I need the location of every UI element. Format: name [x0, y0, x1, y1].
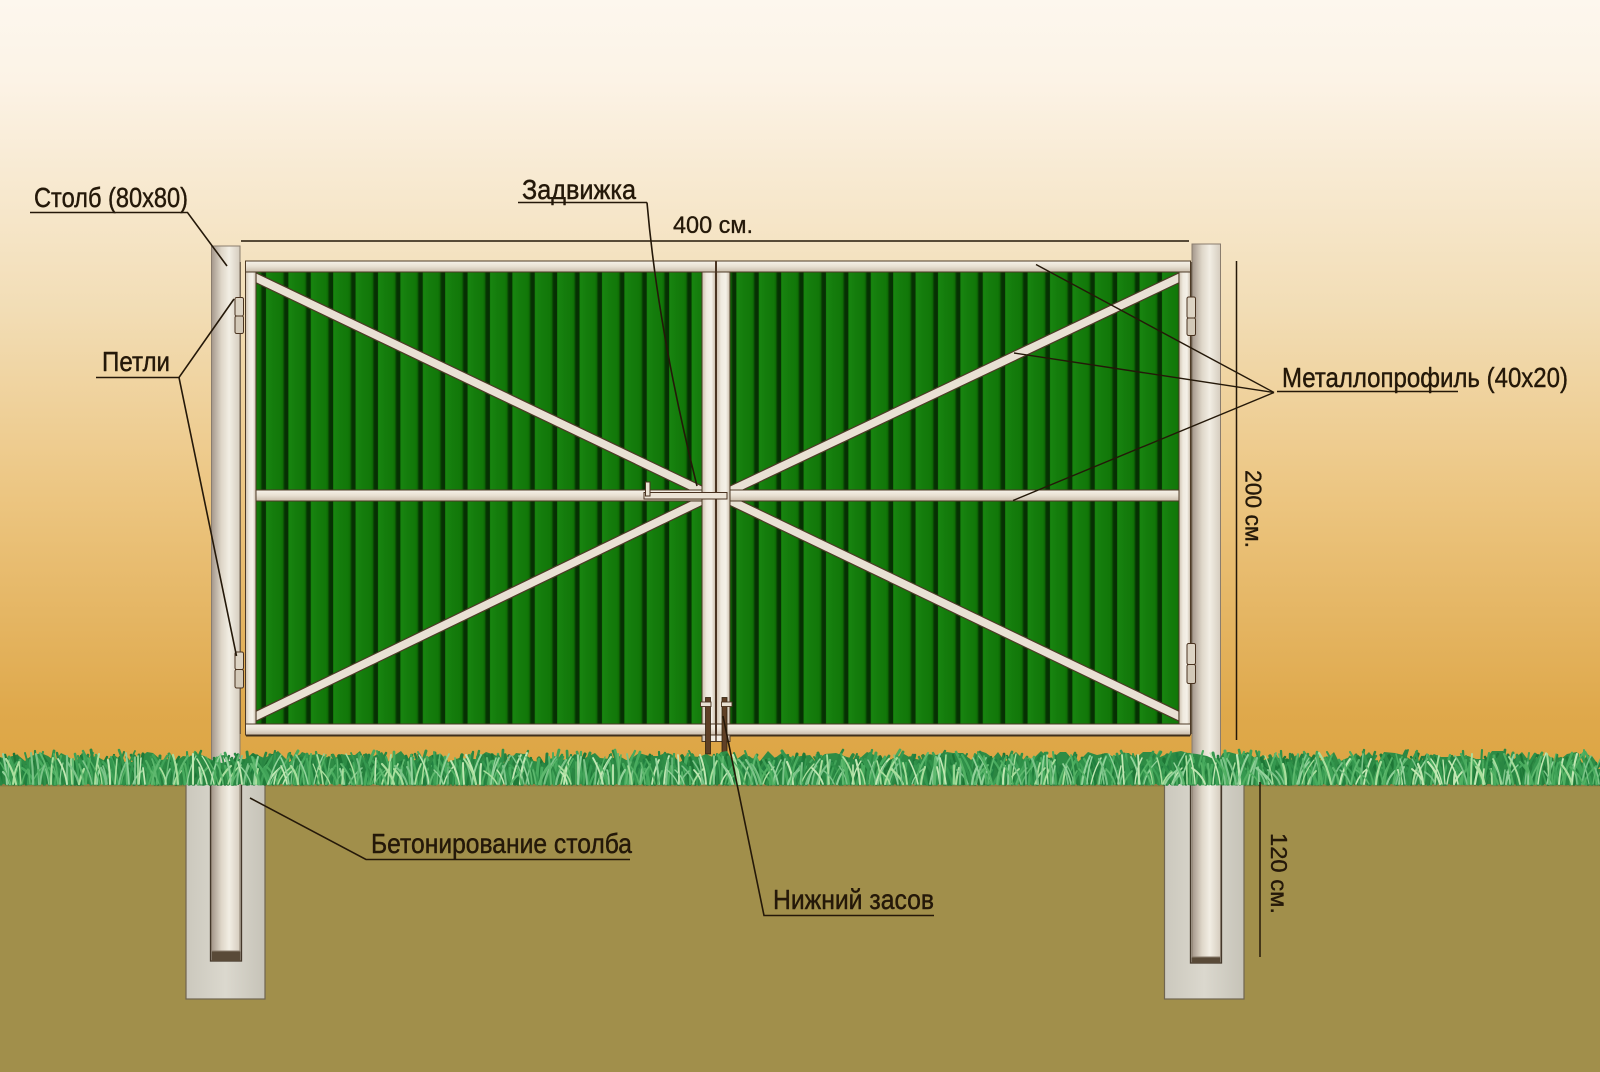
svg-text:120 см.: 120 см. — [1266, 833, 1292, 914]
svg-text:Петли: Петли — [102, 346, 170, 377]
svg-text:Нижний засов: Нижний засов — [773, 884, 934, 915]
svg-text:Задвижка: Задвижка — [522, 174, 636, 205]
svg-text:Бетонирование столба: Бетонирование столба — [371, 828, 632, 859]
svg-text:200 см.: 200 см. — [1241, 470, 1267, 548]
svg-text:Столб (80х80): Столб (80х80) — [34, 182, 188, 213]
svg-text:400 см.: 400 см. — [673, 212, 753, 239]
svg-text:Металлопрофиль (40х20): Металлопрофиль (40х20) — [1282, 362, 1568, 393]
